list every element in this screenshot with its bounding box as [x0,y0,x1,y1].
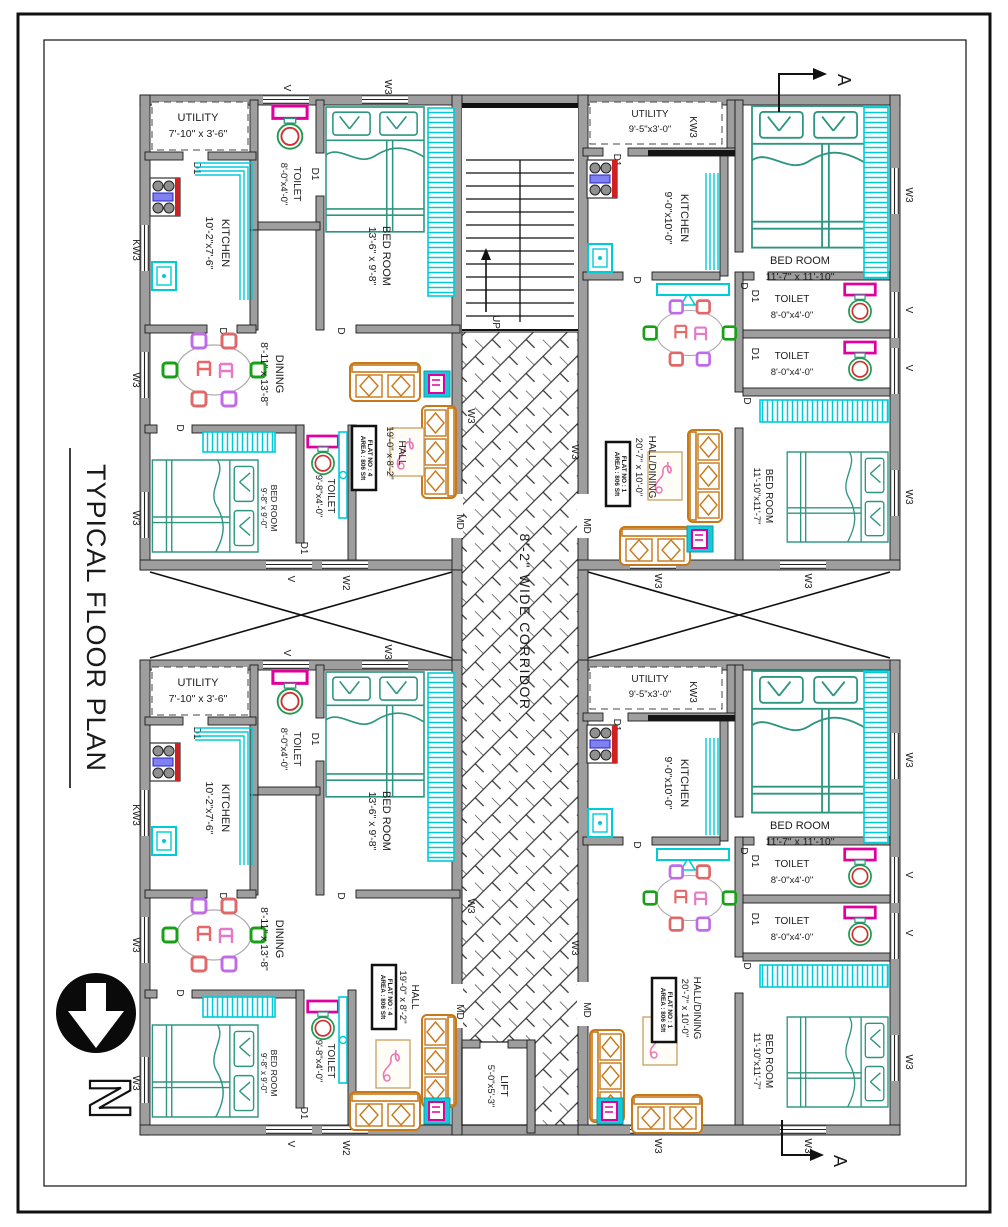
sofa-3seat-icon [422,406,456,498]
room-dims-hall: 20'-7" x 10'-0" [679,979,690,1037]
tv-icon [424,1098,450,1124]
tv-icon [687,526,713,552]
corridor: UP 8'-2" WIDE CORRIDOR MD MD MD MD W3 W3… [451,95,592,1135]
room-dims-hall: 19'-0" x 8'-2" [384,426,395,479]
flat-no: FLAT NO : 1 [620,456,627,493]
lift-label: LIFT [498,1075,510,1097]
north-label: N [77,1077,142,1119]
window-tag-w3: W3 [465,899,476,914]
room-label-hall: HALL/DINING [691,977,702,1040]
corridor-floor [462,332,578,1125]
rug-icon [376,1040,410,1088]
room-dims-hall: 19'-0" x 8'-2" [397,970,408,1023]
staircase: UP [462,103,578,332]
section-label: A [834,74,854,86]
flat-no: FLAT NO : 1 [666,992,673,1029]
sofa-3seat-icon [422,1015,456,1107]
door-tag-md: MD [581,1002,592,1018]
corridor-label: 8'-2" WIDE CORRIDOR [517,534,533,711]
window-tag-w3: W3 [569,941,580,956]
sofa-2seat-icon [632,1095,702,1133]
room-label-hall: HALL [409,984,420,1009]
page-title: TYPICAL FLOOR PLAN [81,464,111,772]
sofa-2seat-icon [350,363,420,401]
sofa-2seat-icon [620,527,690,565]
door-tag-md: MD [581,518,592,534]
flat-area: AREA : 806 Sft [659,988,666,1033]
lift-dims: 5'-0"x5'-3" [485,1065,496,1108]
flat-area: AREA : 806 Sft [379,975,386,1020]
flat-area: AREA : 806 Sft [613,452,620,497]
tv-icon [424,371,450,397]
flat-no: FLAT NO : 4 [386,979,393,1016]
room-label-hall: HALL [396,440,407,465]
flat-no: FLAT NO : 4 [366,440,373,477]
tv-icon [597,1098,623,1124]
lift: LIFT 5'-0"x5'-3" [462,1040,535,1133]
section-label: A [830,1155,850,1167]
sofa-3seat-icon [688,430,722,522]
window-tag-w3: W3 [569,445,580,460]
window-tag-w3: W3 [465,409,476,424]
room-dims-hall: 20'-7" x 10'-0" [633,438,644,496]
stairs-up-label: UP [490,315,501,329]
room-label-hall: HALL/DINING [646,436,657,499]
sofa-2seat-icon [350,1092,420,1130]
flat-area: AREA : 806 Sft [359,436,366,481]
door-tag-md: MD [454,514,465,530]
floor-plan-page: UTILITY 7'-10" x 3'-6" D1 KITCHEN 10'-2"… [0,0,1008,1227]
floor-plan-canvas: UTILITY 7'-10" x 3'-6" D1 KITCHEN 10'-2"… [0,0,1008,1227]
